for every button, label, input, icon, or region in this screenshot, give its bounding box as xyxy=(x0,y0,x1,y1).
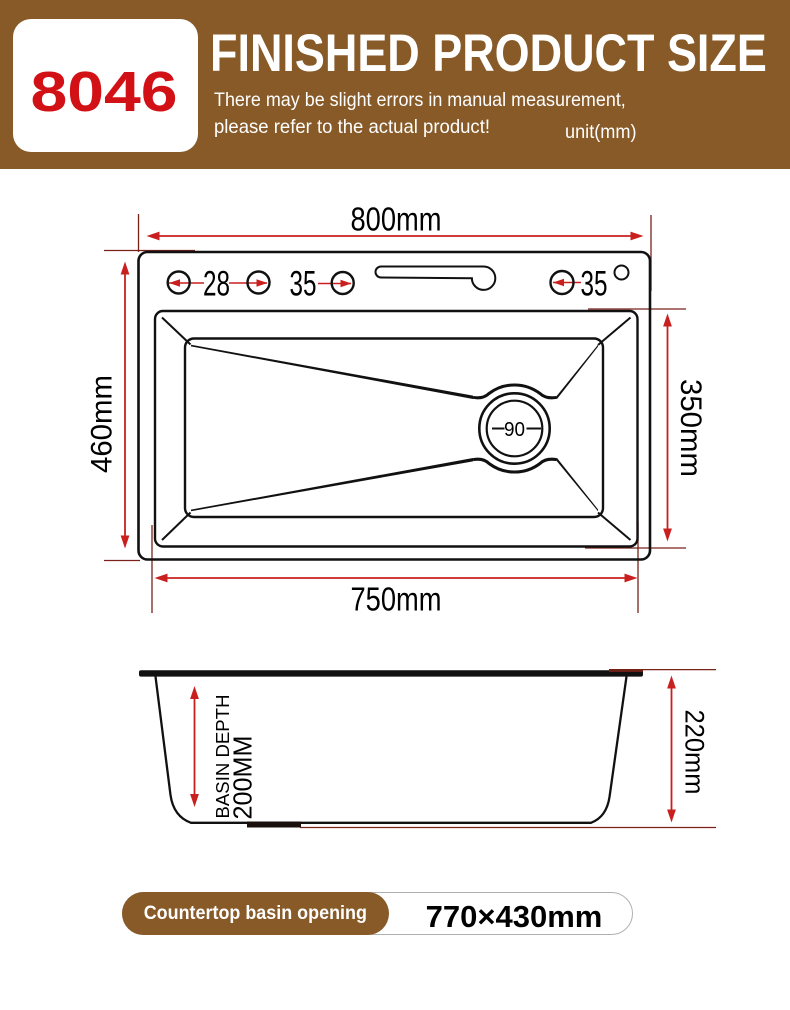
svg-text:800mm: 800mm xyxy=(351,201,442,238)
svg-text:90: 90 xyxy=(504,418,525,441)
svg-text:200MM: 200MM xyxy=(228,736,258,820)
svg-text:220mm: 220mm xyxy=(680,710,710,795)
svg-text:460mm: 460mm xyxy=(86,375,119,473)
svg-text:35: 35 xyxy=(581,265,608,304)
svg-text:28: 28 xyxy=(203,265,230,304)
svg-text:35: 35 xyxy=(290,265,317,304)
svg-text:350mm: 350mm xyxy=(674,379,707,477)
svg-text:750mm: 750mm xyxy=(351,581,442,618)
